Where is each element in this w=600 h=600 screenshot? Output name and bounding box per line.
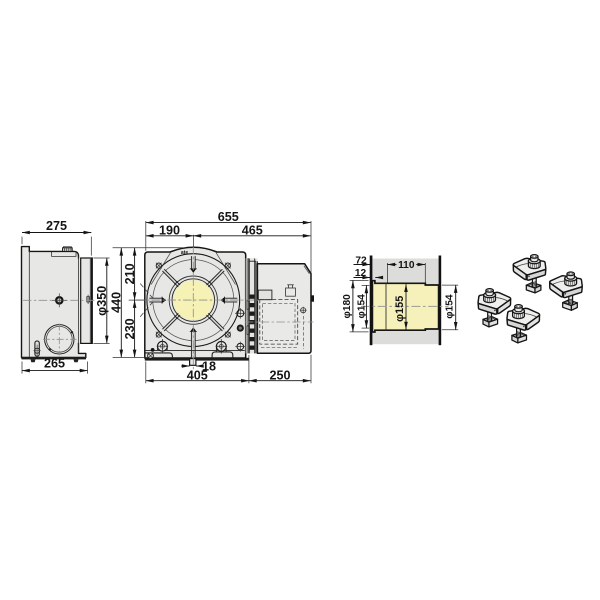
svg-text:φ155: φ155 (394, 296, 406, 322)
svg-text:φ154: φ154 (357, 294, 368, 319)
svg-text:265: 265 (44, 357, 65, 371)
svg-text:230: 230 (123, 318, 137, 339)
svg-text:275: 275 (46, 219, 67, 233)
svg-text:440: 440 (109, 292, 123, 313)
svg-text:250: 250 (269, 368, 290, 382)
svg-text:190: 190 (159, 223, 180, 237)
svg-text:110: 110 (398, 260, 415, 271)
svg-text:18: 18 (202, 360, 216, 374)
svg-text:210: 210 (123, 263, 137, 284)
svg-text:φ350: φ350 (95, 286, 109, 316)
svg-text:φ180: φ180 (342, 294, 353, 319)
svg-text:655: 655 (218, 210, 239, 224)
svg-text:φ154: φ154 (445, 294, 456, 319)
svg-text:465: 465 (242, 223, 263, 237)
